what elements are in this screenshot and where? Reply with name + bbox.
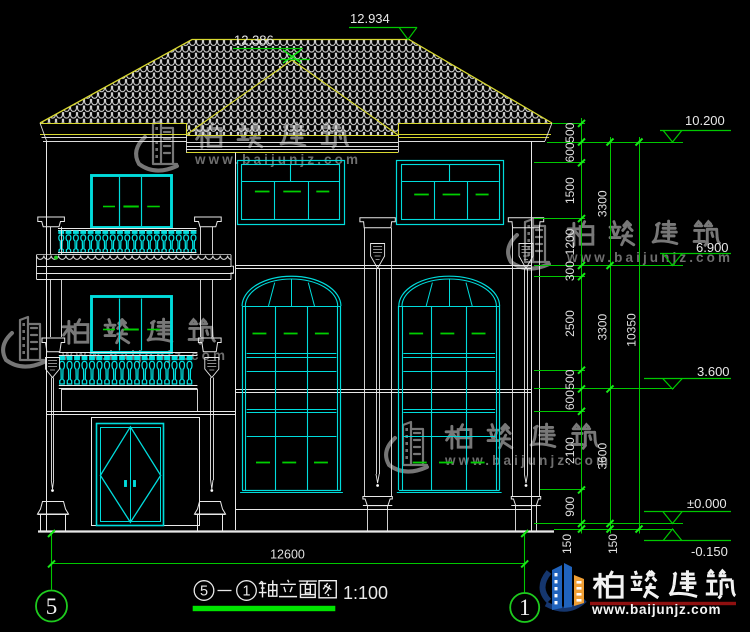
svg-text:1: 1 <box>519 595 531 620</box>
svg-text:3.600: 3.600 <box>697 364 730 379</box>
svg-text:±0.000: ±0.000 <box>687 496 727 511</box>
svg-text:1:100: 1:100 <box>343 583 388 603</box>
svg-text:150: 150 <box>560 534 574 554</box>
svg-text:12.934: 12.934 <box>350 11 390 26</box>
svg-text:150: 150 <box>606 534 620 554</box>
svg-text:500: 500 <box>563 369 577 389</box>
svg-text:600: 600 <box>563 142 577 162</box>
svg-text:2100: 2100 <box>563 437 577 464</box>
svg-text:1500: 1500 <box>563 177 577 204</box>
svg-text:5: 5 <box>46 594 58 619</box>
svg-text:900: 900 <box>563 496 577 516</box>
svg-text:-0.150: -0.150 <box>691 544 728 559</box>
svg-text:1200: 1200 <box>563 228 577 255</box>
svg-text:3600: 3600 <box>596 443 610 470</box>
svg-text:10.200: 10.200 <box>685 113 725 128</box>
svg-text:3300: 3300 <box>596 190 610 217</box>
svg-text:500: 500 <box>563 122 577 142</box>
svg-text:300: 300 <box>563 261 577 281</box>
svg-text:3300: 3300 <box>596 314 610 341</box>
svg-text:1: 1 <box>242 584 250 600</box>
svg-text:12600: 12600 <box>270 548 305 562</box>
svg-text:10350: 10350 <box>625 313 639 347</box>
svg-text:5: 5 <box>200 584 208 600</box>
svg-text:6.900: 6.900 <box>696 240 729 255</box>
svg-text:600: 600 <box>563 390 577 410</box>
svg-text:12.386: 12.386 <box>234 33 274 48</box>
svg-text:2500: 2500 <box>563 310 577 337</box>
svg-text:www.baijunjz.com: www.baijunjz.com <box>591 602 721 617</box>
